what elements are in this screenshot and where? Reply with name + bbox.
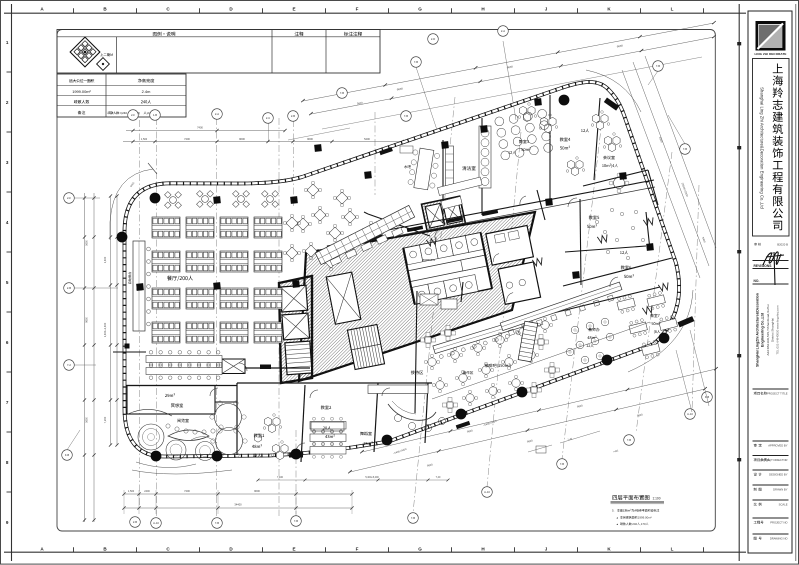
svg-text:LING ZHI DECORATE: LING ZHI DECORATE: [755, 52, 787, 56]
svg-text:PROJECT TITLE: PROJECT TITLE: [767, 392, 788, 396]
svg-text:▲: ▲: [616, 523, 619, 526]
svg-text:PROJECT NO: PROJECT NO: [770, 521, 787, 525]
svg-text:7-2: 7-2: [67, 363, 71, 367]
svg-text:2-B: 2-B: [291, 114, 295, 118]
svg-text:2-F: 2-F: [67, 196, 71, 200]
svg-text:7400: 7400: [184, 137, 190, 141]
svg-text:7-B: 7-B: [294, 519, 298, 523]
svg-text:7-B: 7-B: [215, 521, 219, 525]
svg-text:5,400+5,400: 5,400+5,400: [365, 476, 379, 479]
svg-text:2: 2: [6, 100, 9, 105]
svg-text::240人,170人: :240人,170人: [632, 522, 649, 526]
svg-text:Add:RM.16D,515,YiShanRoad,XuHu: Add:RM.16D,515,YiShanRoad,XuHui: [766, 304, 770, 355]
svg-text:9600: 9600: [239, 137, 245, 141]
svg-text:▲: ▲: [616, 517, 619, 520]
svg-text:4: 4: [6, 220, 9, 225]
svg-text:7,40: 7,40: [436, 476, 441, 479]
svg-text:34400: 34400: [234, 503, 242, 507]
svg-text:9600: 9600: [254, 489, 260, 493]
svg-text:DESIGNED BY: DESIGNED BY: [769, 473, 788, 477]
svg-text:1999.00m²: 1999.00m²: [72, 89, 91, 94]
svg-text:2-F: 2-F: [131, 113, 135, 117]
svg-text:1,400+1,400: 1,400+1,400: [103, 322, 107, 337]
svg-text:2-B: 2-B: [67, 286, 71, 290]
svg-text:NO.: NO.: [754, 279, 760, 283]
svg-text:ShangHai LingZhi Architecture&: ShangHai LingZhi Architecture&Decoration: [756, 293, 760, 367]
svg-text:F: F: [356, 7, 359, 12]
svg-text:2.4m: 2.4m: [142, 89, 151, 94]
svg-text:1,500: 1,500: [141, 138, 148, 141]
svg-text:1: 1: [6, 40, 9, 45]
svg-text:DRAWING NO: DRAWING NO: [770, 537, 788, 541]
svg-text:L: L: [671, 7, 674, 12]
svg-text:E: E: [292, 7, 295, 12]
svg-text:5600: 5600: [86, 417, 89, 423]
svg-text:9600: 9600: [307, 137, 313, 141]
svg-text:1:100: 1:100: [653, 497, 661, 501]
svg-text:J: J: [545, 7, 548, 12]
svg-text:5600: 5600: [86, 240, 89, 246]
svg-text:7-B: 7-B: [404, 114, 408, 118]
svg-text:9600: 9600: [86, 317, 89, 323]
svg-text:5: 5: [6, 280, 9, 285]
svg-text:SCALE: SCALE: [779, 503, 788, 507]
svg-text:2-D: 2-D: [431, 37, 435, 41]
svg-text:F-B: F-B: [65, 453, 70, 457]
svg-text::1999.00m²: :1999.00m²: [637, 516, 652, 520]
svg-text:7-B: 7-B: [560, 462, 564, 466]
svg-text:Shanghai Ling Zhi Architecture: Shanghai Ling Zhi Architecture&Decoratio…: [760, 87, 765, 209]
svg-text:7-B: 7-B: [683, 147, 687, 151]
svg-text:women: women: [422, 257, 435, 262]
svg-text:7,200: 7,200: [103, 416, 107, 423]
svg-text:7-B: 7-B: [340, 91, 344, 95]
svg-text:3: 3: [6, 160, 9, 165]
svg-text:L: L: [671, 547, 674, 552]
svg-text:7-B: 7-B: [656, 64, 660, 68]
svg-text:PROJECT DIRECTOR: PROJECT DIRECTOR: [760, 458, 787, 462]
svg-text:7-B: 7-B: [411, 516, 415, 520]
svg-text:2-A: 2-A: [501, 29, 505, 33]
svg-text:5.: 5.: [612, 509, 615, 513]
svg-text:1,400: 1,400: [103, 256, 107, 263]
svg-text:APPROVED BY: APPROVED BY: [768, 444, 787, 448]
svg-text:5400: 5400: [364, 137, 370, 141]
svg-text:F: F: [356, 547, 359, 552]
svg-text:DRAWN BY: DRAWN BY: [773, 488, 788, 492]
svg-text:A-10: A-10: [687, 412, 693, 416]
svg-text:2-A: 2-A: [215, 112, 219, 116]
svg-text:7-B: 7-B: [414, 60, 418, 64]
svg-text:7400: 7400: [197, 126, 203, 130]
svg-text:E: E: [292, 547, 295, 552]
svg-text:G: G: [418, 547, 422, 552]
svg-text:6: 6: [6, 340, 9, 345]
svg-text:2-B: 2-B: [133, 520, 137, 524]
svg-text:1-B: 1-B: [153, 113, 157, 117]
svg-text:2400: 2400: [144, 490, 150, 493]
svg-text:8: 8: [6, 460, 9, 465]
svg-text:2-C: 2-C: [266, 116, 270, 120]
svg-text:7-B: 7-B: [627, 438, 631, 442]
svg-text:A-10: A-10: [484, 490, 490, 494]
svg-text:A-10: A-10: [153, 521, 159, 525]
svg-text:District ShangHai: District ShangHai: [771, 318, 775, 342]
svg-text:1,500: 1,500: [128, 490, 135, 493]
svg-text:Engineering Co.,Ltd: Engineering Co.,Ltd: [761, 313, 765, 347]
svg-text:B2020 B: B2020 B: [777, 243, 788, 247]
svg-text:REVISIONS: REVISIONS: [754, 264, 773, 268]
svg-text:TEL:021-64840020 www.lingzhis: TEL:021-64840020 www.lingzhisj.com: [776, 305, 780, 355]
svg-text:7400: 7400: [184, 489, 190, 493]
svg-text:7: 7: [6, 400, 9, 405]
svg-text:9: 9: [6, 520, 9, 525]
svg-text:=(240: =(240: [120, 111, 128, 115]
svg-text:J: J: [545, 547, 548, 552]
svg-text:G: G: [418, 7, 422, 12]
svg-text:7,400: 7,400: [277, 476, 284, 479]
